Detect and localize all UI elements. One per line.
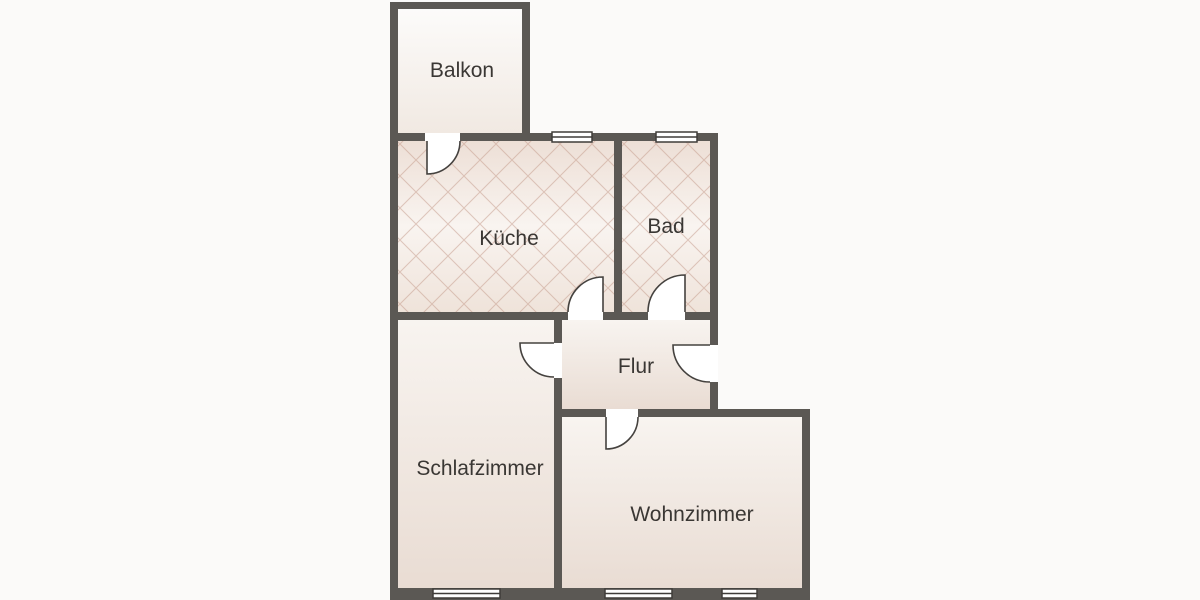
opening-flur-schlafzimmer [554, 343, 562, 378]
room-label-wohnzimmer: Wohnzimmer [630, 503, 753, 526]
room-label-balkon: Balkon [430, 59, 494, 82]
window-kueche [552, 132, 592, 142]
room-label-bad: Bad [647, 215, 684, 238]
opening-bad-flur [648, 312, 685, 320]
room-label-kueche: Küche [479, 227, 539, 250]
window-bad [656, 132, 697, 142]
floor-plan-svg: Balkon Küche Bad Flur Schlafzimmer Wohnz… [0, 0, 1200, 600]
room-label-schlafzimmer: Schlafzimmer [416, 457, 543, 480]
wall-left-exterior [390, 133, 398, 600]
window-schlafzimmer [433, 589, 500, 598]
wall-balkon-top [390, 2, 530, 9]
wall-balkon-left [390, 2, 398, 141]
window-wohnzimmer-left [605, 589, 672, 598]
room-label-flur: Flur [618, 355, 654, 378]
wall-kueche-bad-divider [614, 141, 622, 320]
wall-wohnzimmer-right [802, 409, 810, 600]
wall-balkon-right [522, 2, 530, 141]
opening-kueche-flur [568, 312, 603, 320]
opening-entrance-flur [710, 345, 718, 382]
wall-wohnzimmer-top [554, 409, 810, 417]
window-wohnzimmer-right [722, 589, 757, 598]
opening-flur-wohnzimmer [606, 409, 638, 417]
opening-balkon-kueche [425, 133, 460, 141]
floor-plan-canvas: Balkon Küche Bad Flur Schlafzimmer Wohnz… [0, 0, 1200, 600]
